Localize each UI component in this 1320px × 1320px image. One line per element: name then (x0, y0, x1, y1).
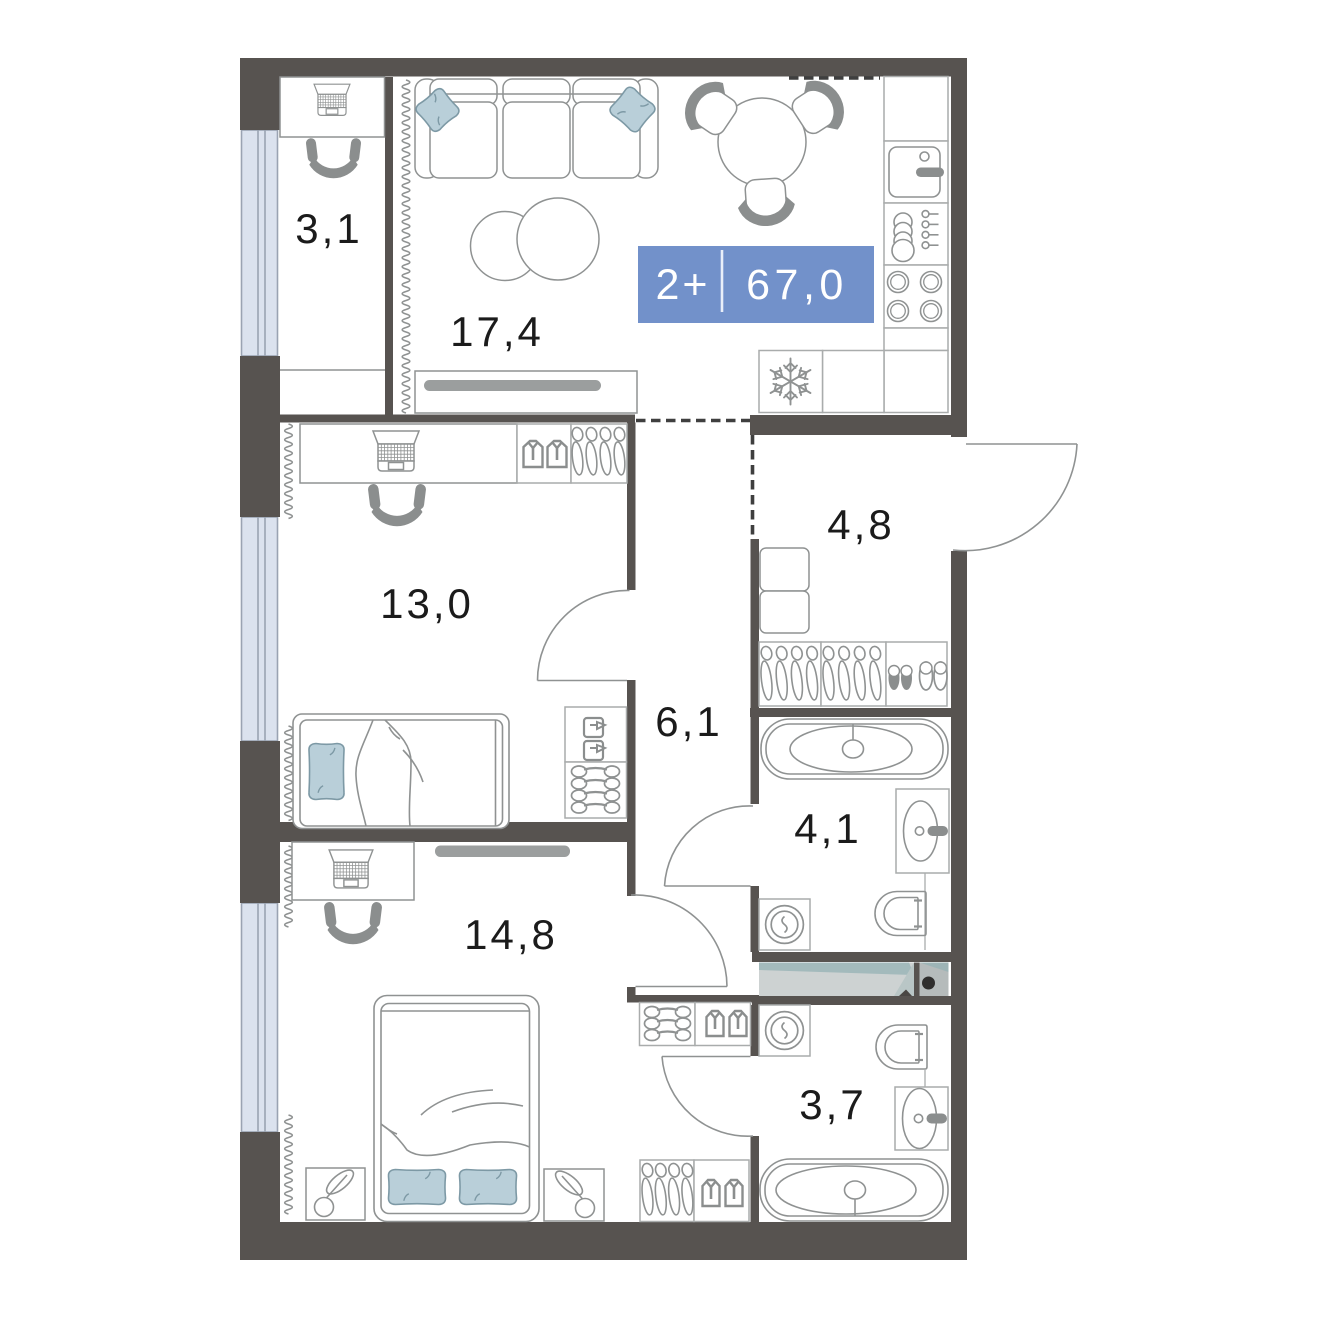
svg-text:17,4: 17,4 (450, 308, 544, 355)
svg-text:4,1: 4,1 (794, 805, 861, 852)
svg-text:67,0: 67,0 (746, 261, 848, 309)
svg-text:3,1: 3,1 (295, 205, 362, 252)
svg-text:6,1: 6,1 (655, 698, 722, 745)
svg-text:3,7: 3,7 (799, 1081, 866, 1128)
svg-text:14,8: 14,8 (464, 911, 558, 958)
svg-text:13,0: 13,0 (380, 580, 474, 627)
svg-text:4,8: 4,8 (827, 501, 894, 548)
svg-text:2+: 2+ (655, 261, 710, 309)
